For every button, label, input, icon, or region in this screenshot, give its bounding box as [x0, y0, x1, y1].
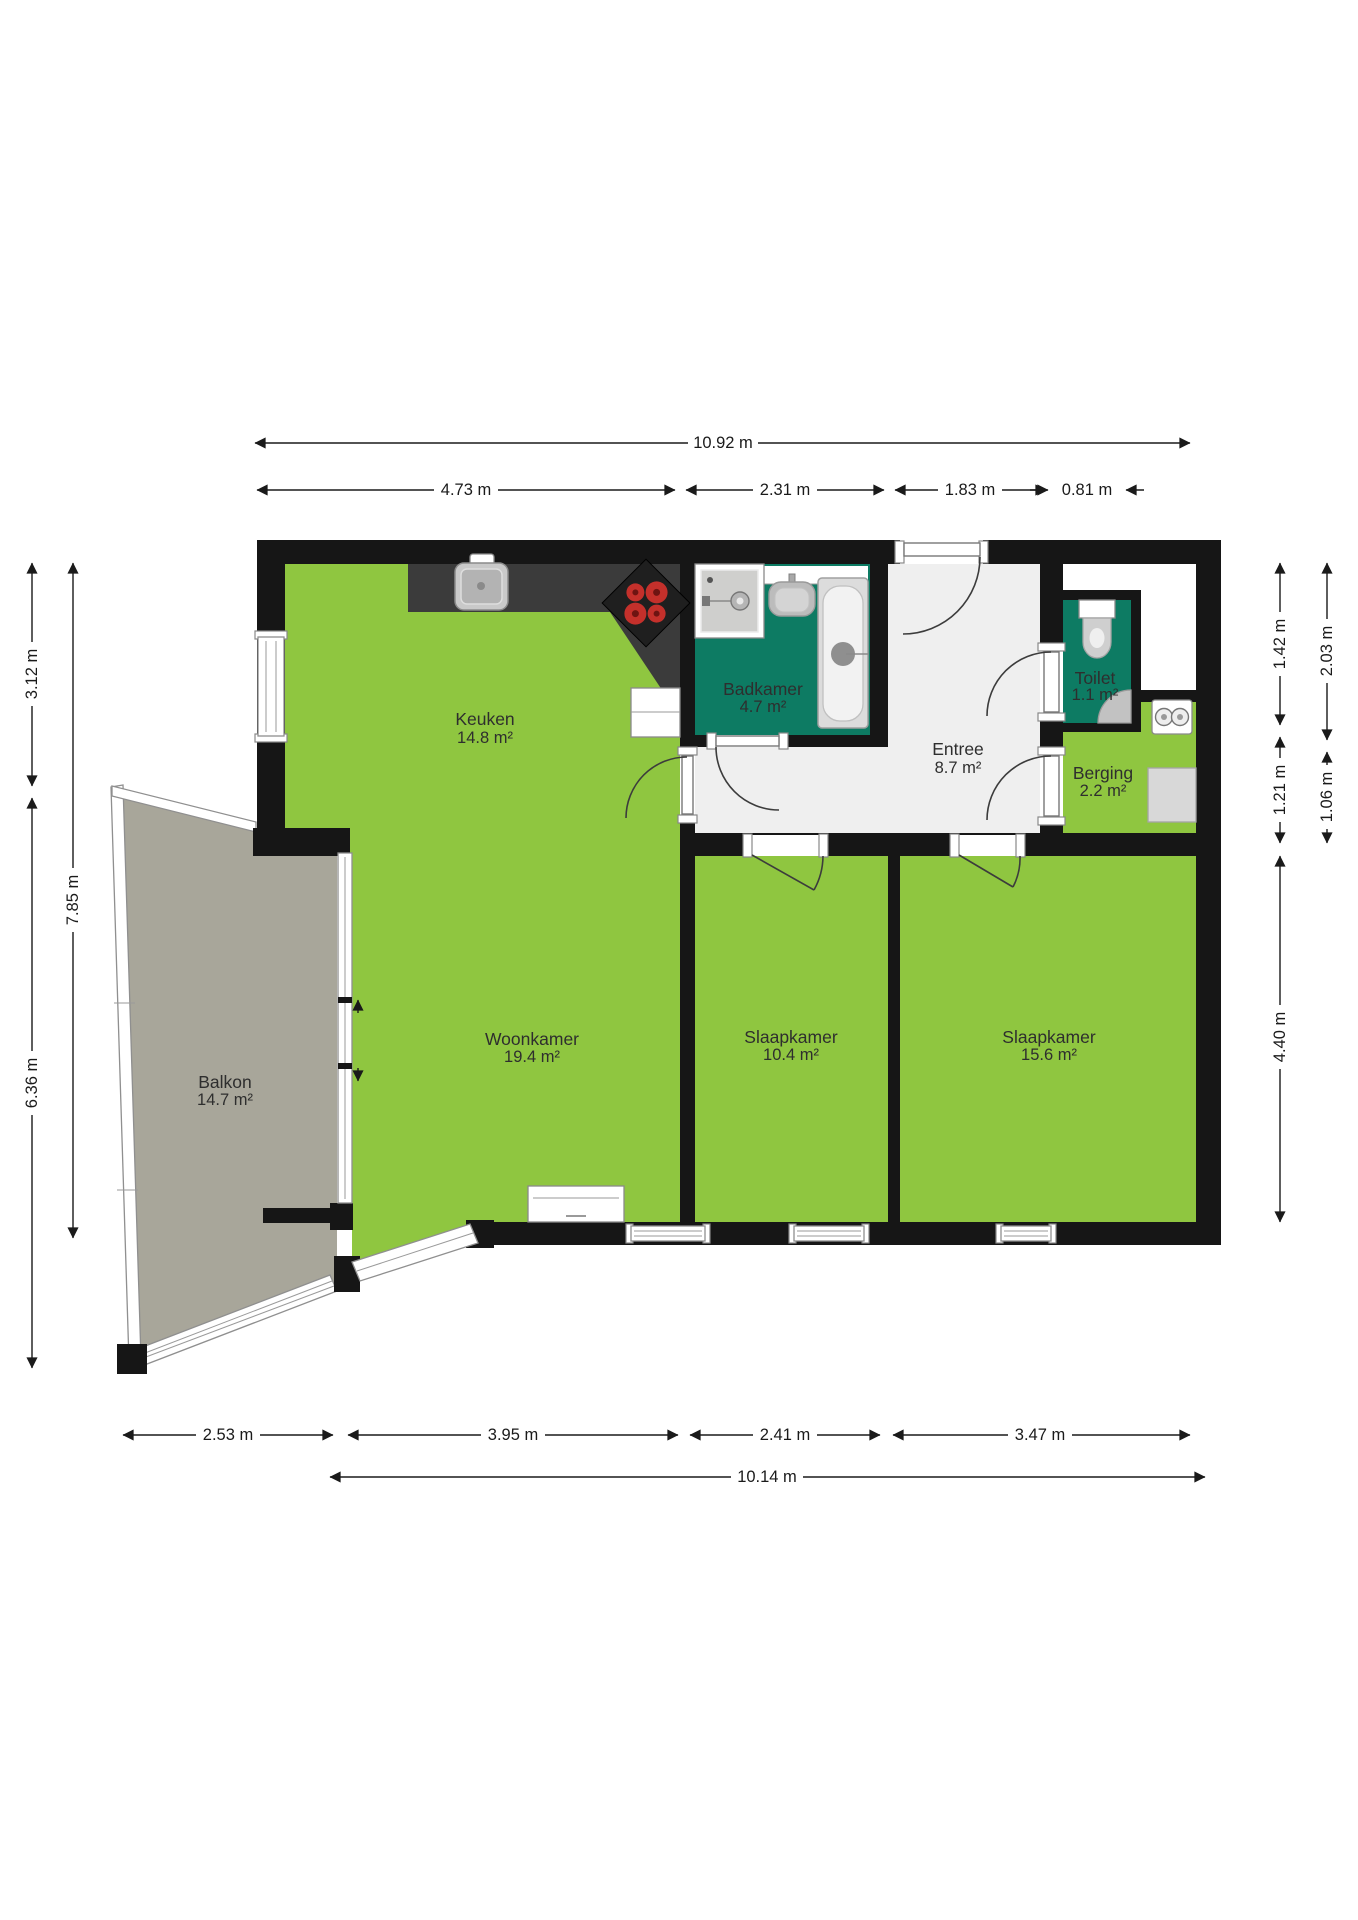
svg-text:4.40 m: 4.40 m — [1271, 1012, 1289, 1062]
wall-badkamer-right — [870, 564, 888, 747]
svg-text:0.81 m: 0.81 m — [1062, 481, 1112, 499]
svg-text:Badkamer: Badkamer — [723, 679, 803, 699]
svg-text:2.41 m: 2.41 m — [760, 1426, 810, 1444]
svg-text:Woonkamer: Woonkamer — [485, 1029, 579, 1049]
wall-right — [1196, 540, 1221, 1245]
washing-machine-icon — [1152, 700, 1192, 734]
dim-bottom-seg-1: 2.53 m — [123, 1424, 333, 1446]
wall-balcony-corner-stub — [117, 1344, 147, 1374]
toilet-icon — [1079, 600, 1115, 658]
wall-balcony-connector — [253, 828, 350, 856]
svg-text:14.8 m²: 14.8 m² — [457, 729, 513, 747]
room-label-balkon: Balkon 14.7 m² — [197, 1072, 253, 1109]
dim-bottom-seg-3: 2.41 m — [690, 1424, 880, 1446]
svg-text:10.14 m: 10.14 m — [737, 1468, 797, 1486]
dim-bottom-seg-2: 3.95 m — [348, 1424, 678, 1446]
wall-balcony-stub — [263, 1208, 350, 1223]
dim-right-inner-1: 1.42 m — [1269, 563, 1291, 725]
svg-text:Toilet: Toilet — [1075, 668, 1116, 688]
dim-top-seg-3: 1.83 m — [895, 479, 1046, 501]
svg-text:2.31 m: 2.31 m — [760, 481, 810, 499]
room-label-toilet: Toilet 1.1 m² — [1072, 668, 1119, 704]
svg-text:14.7 m²: 14.7 m² — [197, 1091, 253, 1109]
svg-text:Keuken: Keuken — [455, 709, 514, 729]
room-label-berging: Berging 2.2 m² — [1073, 763, 1133, 800]
dim-right-outer-1: 2.03 m — [1316, 563, 1338, 740]
svg-text:2.03 m: 2.03 m — [1318, 626, 1336, 676]
dim-left-inner-top: 3.12 m — [21, 563, 43, 786]
svg-text:Entree: Entree — [932, 739, 984, 759]
living-room-fixtures — [528, 1186, 624, 1222]
dim-top-seg-4: 0.81 m — [1030, 479, 1144, 501]
room-label-keuken: Keuken 14.8 m² — [455, 709, 514, 747]
svg-text:1.06 m: 1.06 m — [1318, 772, 1336, 822]
dim-top-total: 10.92 m — [255, 432, 1190, 454]
dim-bottom-total: 10.14 m — [330, 1466, 1205, 1488]
svg-text:1.21 m: 1.21 m — [1271, 765, 1289, 815]
window-bottom-3 — [996, 1224, 1056, 1243]
dim-bottom-seg-4: 3.47 m — [893, 1424, 1190, 1446]
svg-text:Slaapkamer: Slaapkamer — [744, 1027, 838, 1047]
svg-text:19.4 m²: 19.4 m² — [504, 1048, 560, 1066]
svg-text:3.95 m: 3.95 m — [488, 1426, 538, 1444]
svg-text:1.42 m: 1.42 m — [1271, 619, 1289, 669]
bathtub-icon — [818, 578, 869, 728]
dim-left-inner-bottom: 6.36 m — [21, 798, 43, 1368]
dim-left-outer: 7.85 m — [62, 563, 84, 1238]
svg-text:4.73 m: 4.73 m — [441, 481, 491, 499]
svg-text:10.4 m²: 10.4 m² — [763, 1046, 819, 1064]
svg-text:3.12 m: 3.12 m — [23, 649, 41, 699]
svg-text:6.36 m: 6.36 m — [23, 1058, 41, 1108]
svg-text:7.85 m: 7.85 m — [64, 875, 82, 925]
floor-plan-page: Keuken 14.8 m² Badkamer 4.7 m² Entree 8.… — [0, 0, 1358, 1920]
window-keuken — [255, 631, 287, 742]
dim-right-outer-2: 1.06 m — [1316, 752, 1338, 843]
dim-top-seg-1: 4.73 m — [257, 479, 675, 501]
svg-text:2.2 m²: 2.2 m² — [1080, 782, 1127, 800]
svg-text:2.53 m: 2.53 m — [203, 1426, 253, 1444]
svg-text:Balkon: Balkon — [198, 1072, 252, 1092]
floor-plan-canvas: Keuken 14.8 m² Badkamer 4.7 m² Entree 8.… — [0, 0, 1358, 1920]
wall-toilet-bottom — [1063, 723, 1141, 732]
svg-text:Slaapkamer: Slaapkamer — [1002, 1027, 1096, 1047]
window-bottom-2 — [789, 1224, 869, 1243]
kitchen-sink-icon — [455, 554, 508, 610]
water-heater-icon — [1148, 768, 1196, 822]
wall-toilet-top — [1063, 590, 1131, 600]
wall-bedroom-divider — [888, 856, 900, 1222]
wall-kitchen-spine — [680, 540, 695, 1222]
sideboard — [528, 1186, 624, 1222]
svg-text:10.92 m: 10.92 m — [693, 434, 753, 452]
svg-text:1.1 m²: 1.1 m² — [1072, 686, 1119, 704]
window-bottom-1 — [626, 1224, 710, 1243]
wall-toilet-right — [1131, 590, 1141, 723]
dim-right-inner-3: 4.40 m — [1269, 856, 1291, 1222]
room-label-entree: Entree 8.7 m² — [932, 739, 984, 777]
svg-text:Berging: Berging — [1073, 763, 1133, 783]
wall-top — [257, 540, 1221, 564]
dim-top-seg-2: 2.31 m — [686, 479, 884, 501]
svg-text:8.7 m²: 8.7 m² — [935, 759, 982, 777]
shower-icon — [695, 564, 764, 638]
dim-right-inner-2: 1.21 m — [1269, 737, 1291, 843]
svg-text:15.6 m²: 15.6 m² — [1021, 1046, 1077, 1064]
svg-text:1.83 m: 1.83 m — [945, 481, 995, 499]
svg-text:3.47 m: 3.47 m — [1015, 1426, 1065, 1444]
svg-text:4.7 m²: 4.7 m² — [740, 698, 787, 716]
